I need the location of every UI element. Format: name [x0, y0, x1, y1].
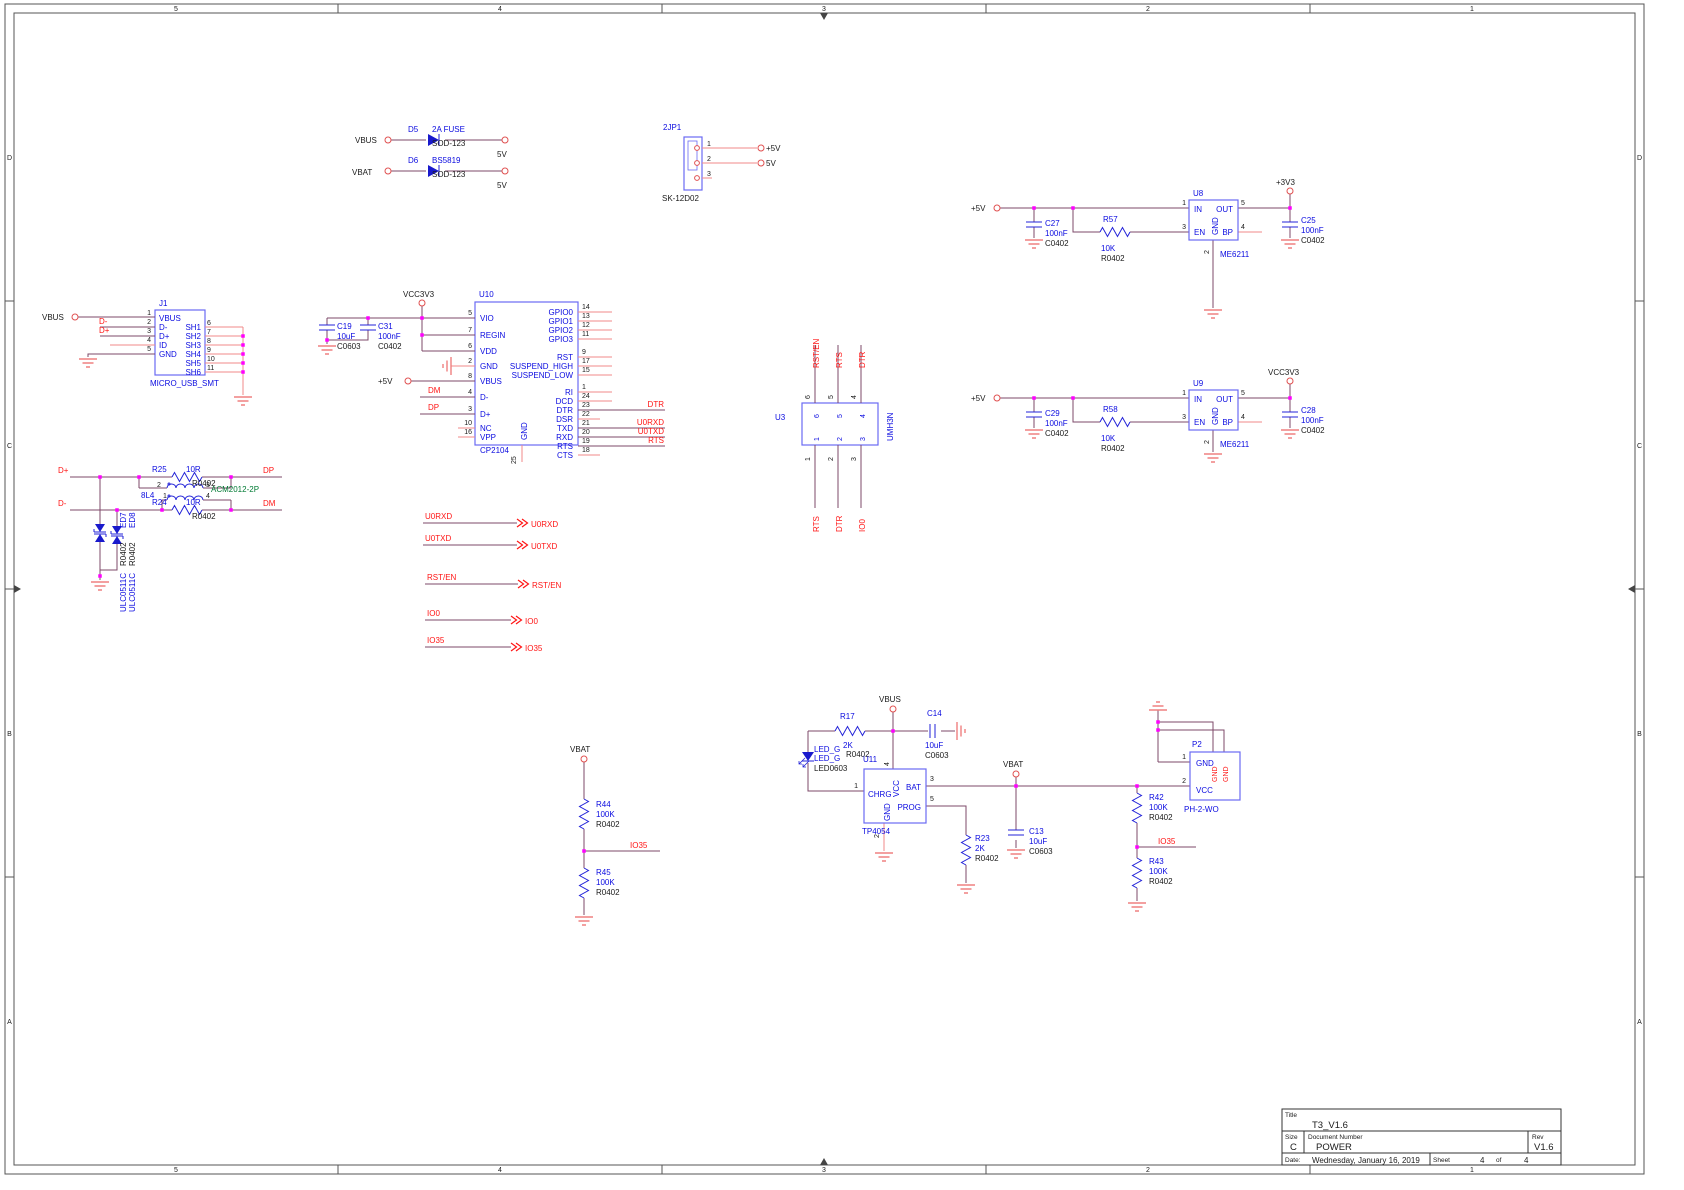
val-c27: 100nF — [1045, 229, 1068, 238]
val-r42: 100K — [1149, 803, 1168, 812]
pn-u11-vcc: VCC — [892, 780, 901, 797]
pin-u3-6i: 6 — [814, 414, 821, 418]
zone-row: C — [1637, 443, 1642, 450]
size-label: Size — [1285, 1134, 1298, 1141]
pn-u10-vio: VIO — [480, 314, 494, 323]
fp-d5: SOD-123 — [432, 139, 466, 148]
pin-u10-11: 11 — [582, 331, 589, 338]
ref-jp1: 2JP1 — [663, 123, 682, 132]
net-3v3: +3V3 — [1276, 178, 1295, 187]
zone-col: 5 — [174, 1167, 178, 1174]
pn-u10-gnd2: GND — [520, 422, 529, 440]
val-r43: 100K — [1149, 867, 1168, 876]
val-u8: ME6211 — [1220, 250, 1250, 259]
val-r57: 10K — [1101, 244, 1116, 253]
pin-u3-6o: 6 — [805, 395, 812, 399]
net-dm-u10: DM — [428, 386, 441, 395]
pin-u10-3: 3 — [468, 406, 472, 413]
zone-row: C — [7, 443, 12, 450]
pin-u10-14: 14 — [582, 304, 590, 311]
net-vcc3v3-u9: VCC3V3 — [1268, 368, 1300, 377]
net-p5v-u10: +5V — [378, 377, 393, 386]
fp-r44: R0402 — [596, 820, 620, 829]
pin-p2-2: 2 — [1182, 778, 1186, 785]
pin-u9-2: 2 — [1204, 440, 1211, 444]
ref-r25: R25 — [152, 465, 167, 474]
net-5v-jp1: 5V — [766, 159, 776, 168]
net-u0rxd-r: U0RXD — [531, 520, 558, 529]
pn-j1-sh1: SH1 — [185, 323, 201, 332]
val-p2: PH-2-WO — [1184, 805, 1219, 814]
component-u11-charger[interactable] — [799, 702, 1240, 911]
pn-u10-gpio2: GPIO2 — [549, 326, 574, 335]
sheet-label: Sheet — [1433, 1157, 1450, 1164]
pn-u9-bp: BP — [1222, 418, 1233, 427]
pn-u10-dsr: DSR — [556, 415, 573, 424]
pn-j1-vbus: VBUS — [159, 314, 181, 323]
net-io35-r: IO35 — [525, 644, 543, 653]
val-j1: MICRO_USB_SMT — [150, 379, 219, 388]
zone-col: 4 — [498, 1167, 502, 1174]
pn-u10-gpio3: GPIO3 — [549, 335, 574, 344]
pin-j1-5: 5 — [147, 346, 151, 353]
zone-col: 2 — [1146, 6, 1150, 13]
zone-col: 3 — [822, 6, 826, 13]
net-rts-u10: RTS — [648, 436, 664, 445]
ref-c29: C29 — [1045, 409, 1060, 418]
pn-u8-en: EN — [1194, 228, 1205, 237]
val-c29: 100nF — [1045, 419, 1068, 428]
net-dplus: D+ — [58, 466, 69, 475]
val-c25: 100nF — [1301, 226, 1324, 235]
pin-u10-7: 7 — [468, 327, 472, 334]
pn-u9-en: EN — [1194, 418, 1205, 427]
sheet-frame — [5, 4, 1644, 1174]
fp-c14: C0603 — [925, 751, 949, 760]
zone-row: A — [7, 1019, 12, 1026]
zone-row: B — [7, 731, 12, 738]
pin-u3-5o: 5 — [828, 395, 835, 399]
fp-r57: R0402 — [1101, 254, 1125, 263]
fp-r58: R0402 — [1101, 444, 1125, 453]
fp-jp1: SK-12D02 — [662, 194, 699, 203]
pin-j1-4: 4 — [147, 337, 151, 344]
pn-j1-dplus: D+ — [159, 332, 170, 341]
zone-col: 1 — [1470, 6, 1474, 13]
zone-row: A — [1637, 1019, 1642, 1026]
val-r25: 10R — [186, 465, 201, 474]
schematic-canvas: 5 4 3 2 1 5 4 3 2 1 D C B A D C B A — [0, 0, 1684, 1190]
val-c19: 10uF — [337, 332, 355, 341]
val-u11: TP4054 — [862, 827, 891, 836]
pin-l4-2: 2 — [157, 482, 161, 489]
pin-u10-10: 10 — [464, 420, 472, 427]
pn-j1-sh4: SH4 — [185, 350, 201, 359]
pin-u10-15: 15 — [582, 367, 590, 374]
pin-u3-1o: 1 — [805, 457, 812, 461]
pn-j1-sh5: SH5 — [185, 359, 201, 368]
sheet-date: Wednesday, January 16, 2019 — [1312, 1156, 1420, 1165]
fp-c28: C0402 — [1301, 426, 1325, 435]
schematic-sheet: 5 4 3 2 1 5 4 3 2 1 D C B A D C B A — [0, 0, 1684, 1190]
val-c13: 10uF — [1029, 837, 1047, 846]
title-block: Title T3_V1.6 Size C Document Number POW… — [1282, 1109, 1561, 1165]
net-rsten-u3: RST/EN — [812, 338, 821, 368]
net-vbat-d6: VBAT — [352, 168, 372, 177]
zone-col: 2 — [1146, 1167, 1150, 1174]
sheet-title: T3_V1.6 — [1312, 1120, 1348, 1131]
net-io35-chg: IO35 — [1158, 837, 1176, 846]
net-rsten-r: RST/EN — [532, 581, 562, 590]
pin-u10-22: 22 — [582, 411, 590, 418]
net-vbus-d5: VBUS — [355, 136, 377, 145]
net-u0rxd-l: U0RXD — [425, 512, 452, 521]
pin-u10-5: 5 — [468, 310, 472, 317]
pn-u10-ri: RI — [565, 388, 573, 397]
pin-l4-3: 3 — [206, 482, 210, 489]
val-u10: CP2104 — [480, 446, 509, 455]
pin-j1-11: 11 — [207, 365, 214, 372]
fp-r45: R0402 — [596, 888, 620, 897]
pn-u10-dtr: DTR — [557, 406, 574, 415]
val-r23: 2K — [975, 844, 985, 853]
pin-u10-21: 21 — [582, 420, 590, 427]
zone-labels: 5 4 3 2 1 5 4 3 2 1 D C B A D C B A — [7, 6, 1642, 1174]
ref-u11: U11 — [863, 755, 878, 764]
net-io0-r: IO0 — [525, 617, 538, 626]
pin-u3-5i: 5 — [837, 414, 844, 418]
pin-u8-1: 1 — [1182, 200, 1186, 207]
val-d6: BS5819 — [432, 156, 461, 165]
zone-col: 1 — [1470, 1167, 1474, 1174]
net-rts-u3t: RTS — [835, 352, 844, 368]
val-r44: 100K — [596, 810, 615, 819]
pin-j1-1: 1 — [147, 310, 151, 317]
rev-label: Rev — [1532, 1134, 1544, 1141]
pin-u10-6: 6 — [468, 343, 472, 350]
pn-u11-prog: PROG — [897, 803, 921, 812]
component-u8-regulator[interactable] — [994, 188, 1299, 318]
val-u3: UMH3N — [886, 412, 895, 441]
val-r17: 2K — [843, 741, 853, 750]
fp-d6: SOD-123 — [432, 170, 466, 179]
pin-u3-3i: 3 — [860, 437, 867, 441]
pn-u11-gnd: GND — [883, 803, 892, 821]
pn-u10-dplus: D+ — [480, 410, 491, 419]
net-dp-u10: DP — [428, 403, 439, 412]
pin-u10-2: 2 — [468, 358, 472, 365]
net-dtr-u3b: DTR — [835, 515, 844, 532]
net-vbat-div: VBAT — [570, 745, 590, 754]
pin-u10-20: 20 — [582, 429, 590, 436]
ref-c25: C25 — [1301, 216, 1316, 225]
net-u0rxd-u10: U0RXD — [637, 418, 664, 427]
ref-r17: R17 — [840, 712, 855, 721]
ref-r24: R24 — [152, 498, 167, 507]
pn-u10-susl: SUSPEND_LOW — [512, 371, 574, 380]
pin-u10-8: 8 — [468, 373, 472, 380]
val-c31: 100nF — [378, 332, 401, 341]
net-io0-u3b: IO0 — [858, 519, 867, 532]
ref-j1: J1 — [159, 299, 168, 308]
fp-c27: C0402 — [1045, 239, 1069, 248]
pin-u8-3: 3 — [1182, 224, 1186, 231]
pin-u3-2i: 2 — [837, 437, 844, 441]
net-p5v-u9: +5V — [971, 394, 986, 403]
net-dp: DP — [263, 466, 274, 475]
ref-r42: R42 — [1149, 793, 1164, 802]
document-number: POWER — [1316, 1142, 1352, 1153]
net-p5v-jp1: +5V — [766, 144, 781, 153]
ref-u3: U3 — [775, 413, 786, 422]
pn-u8-in: IN — [1194, 205, 1202, 214]
fp-r42: R0402 — [1149, 813, 1173, 822]
sheet-number: 4 — [1480, 1156, 1485, 1165]
net-io35-div: IO35 — [630, 841, 648, 850]
pn-j1-dminus: D- — [159, 323, 168, 332]
pn-u10-gpio1: GPIO1 — [549, 317, 574, 326]
pn-u10-regin: REGIN — [480, 331, 506, 340]
ref-r57: R57 — [1103, 215, 1118, 224]
net-gnd-p2a: GND — [1212, 766, 1219, 782]
pn-j1-sh6: SH6 — [185, 368, 201, 377]
pn-u10-gpio0: GPIO0 — [549, 308, 574, 317]
docnum-label: Document Number — [1308, 1134, 1363, 1141]
ref-r43: R43 — [1149, 857, 1164, 866]
pin-u9-5: 5 — [1241, 390, 1245, 397]
fp-r24: R0402 — [192, 512, 216, 521]
pin-u8-5: 5 — [1241, 200, 1245, 207]
fp-ed7: R0402 — [119, 542, 128, 566]
pn-j1-id: ID — [159, 341, 167, 350]
pin-u10-25: 25 — [511, 456, 518, 464]
pin-u11-4: 4 — [884, 762, 891, 766]
component-u3-umh3n[interactable] — [802, 345, 878, 508]
val-r58: 10K — [1101, 434, 1116, 443]
pin-u10-17: 17 — [582, 358, 590, 365]
pn-u10-rxd: RXD — [556, 433, 573, 442]
ref-ed8: ED8 — [128, 512, 137, 528]
sheet-rev: V1.6 — [1534, 1142, 1554, 1153]
val-led: LED_G — [814, 754, 840, 763]
pin-l4-4: 4 — [206, 493, 210, 500]
net-io0-l: IO0 — [427, 609, 440, 618]
net-u0txd-l: U0TXD — [425, 534, 451, 543]
net-vbus-j1: VBUS — [42, 313, 64, 322]
zone-row: D — [1637, 155, 1642, 162]
net-5v-d6: 5V — [497, 181, 507, 190]
val-d5: 2A FUSE — [432, 125, 465, 134]
pin-u3-1i: 1 — [814, 437, 821, 441]
pin-jp1-2: 2 — [707, 156, 711, 163]
pn-j1-sh3: SH3 — [185, 341, 201, 350]
pin-u11-5: 5 — [930, 796, 934, 803]
pin-u3-4i: 4 — [860, 414, 867, 418]
val-r45: 100K — [596, 878, 615, 887]
pin-j1-10: 10 — [207, 356, 215, 363]
net-rts-u3b: RTS — [812, 516, 821, 532]
net-vbat-chg: VBAT — [1003, 760, 1023, 769]
fp-c31: C0402 — [378, 342, 402, 351]
pn-u10-dcd: DCD — [556, 397, 574, 406]
pn-u9-in: IN — [1194, 395, 1202, 404]
title-label: Title — [1285, 1112, 1297, 1119]
ref-c13: C13 — [1029, 827, 1044, 836]
net-dm: DM — [263, 499, 276, 508]
zone-col: 5 — [174, 6, 178, 13]
pin-u10-18: 18 — [582, 447, 590, 454]
pn-u10-vdd: VDD — [480, 347, 497, 356]
pin-j1-6: 6 — [207, 320, 211, 327]
fp-c13: C0603 — [1029, 847, 1053, 856]
pin-u10-19: 19 — [582, 438, 590, 445]
zone-row: B — [1637, 731, 1642, 738]
pin-j1-3: 3 — [147, 328, 151, 335]
ref-r45: R45 — [596, 868, 611, 877]
val-r24: 10R — [186, 498, 201, 507]
pin-u10-9: 9 — [582, 349, 586, 356]
pin-jp1-1: 1 — [707, 141, 711, 148]
ref-u10: U10 — [479, 290, 494, 299]
ref-d6: D6 — [408, 156, 419, 165]
pin-j1-2: 2 — [147, 319, 151, 326]
fp-c19: C0603 — [337, 342, 361, 351]
pin-u10-24: 24 — [582, 393, 590, 400]
zone-col: 3 — [822, 1167, 826, 1174]
net-5v-d5: 5V — [497, 150, 507, 159]
ref-d5: D5 — [408, 125, 419, 134]
fp-c25: C0402 — [1301, 236, 1325, 245]
pin-u10-23: 23 — [582, 402, 590, 409]
net-vcc3v3-u10: VCC3V3 — [403, 290, 435, 299]
net-p5v-u8: +5V — [971, 204, 986, 213]
pn-u9-out: OUT — [1216, 395, 1233, 404]
ref-u8: U8 — [1193, 189, 1204, 198]
pn-u10-dminus: D- — [480, 393, 489, 402]
pn-u11-chrg: CHRG — [868, 790, 892, 799]
pin-j1-9: 9 — [207, 347, 211, 354]
net-dtr-u3t: DTR — [858, 351, 867, 368]
pin-u10-16: 16 — [464, 429, 472, 436]
pin-u3-3o: 3 — [851, 457, 858, 461]
pn-u10-rts: RTS — [557, 442, 573, 451]
pn-u8-out: OUT — [1216, 205, 1233, 214]
ref-p2: P2 — [1192, 740, 1202, 749]
ref-c14: C14 — [927, 709, 942, 718]
net-dplus-j1: D+ — [99, 326, 110, 335]
fp-r43: R0402 — [1149, 877, 1173, 886]
pn-u10-gnd: GND — [480, 362, 498, 371]
pin-u11-3: 3 — [930, 776, 934, 783]
pn-j1-sh2: SH2 — [185, 332, 201, 341]
net-dminus-j1: D- — [99, 317, 108, 326]
ref-r58: R58 — [1103, 405, 1118, 414]
pin-u8-4: 4 — [1241, 224, 1245, 231]
net-dtr-u10: DTR — [648, 400, 665, 409]
ref-r44: R44 — [596, 800, 611, 809]
pn-u8-gnd: GND — [1211, 217, 1220, 235]
ref-u9: U9 — [1193, 379, 1204, 388]
ref-ed7: ED7 — [119, 512, 128, 528]
ref-c19: C19 — [337, 322, 352, 331]
fp-ed8: R0402 — [128, 542, 137, 566]
val-ed8: ULC0511C — [128, 573, 137, 612]
pin-u9-1: 1 — [1182, 390, 1186, 397]
fp-r23: R0402 — [975, 854, 999, 863]
val-c28: 100nF — [1301, 416, 1324, 425]
pin-u10-13: 13 — [582, 313, 590, 320]
pin-u11-1: 1 — [854, 783, 858, 790]
val-c14: 10uF — [925, 741, 943, 750]
pin-u8-2: 2 — [1204, 250, 1211, 254]
pn-u10-rst: RST — [557, 353, 573, 362]
fp-led: LED0603 — [814, 764, 848, 773]
val-l4: ACM2012-2P — [211, 485, 259, 494]
pin-u10-1: 1 — [582, 384, 586, 391]
ref-c28: C28 — [1301, 406, 1316, 415]
sheet-total: 4 — [1524, 1156, 1529, 1165]
pn-j1-gnd: GND — [159, 350, 177, 359]
pin-jp1-3: 3 — [707, 171, 711, 178]
net-rsten-l: RST/EN — [427, 573, 457, 582]
ref-led: LED_G — [814, 745, 840, 754]
pin-j1-8: 8 — [207, 338, 211, 345]
pn-p2-vcc: VCC — [1196, 786, 1213, 795]
zone-row: D — [7, 155, 12, 162]
pn-u11-bat: BAT — [906, 783, 921, 792]
pin-u9-4: 4 — [1241, 414, 1245, 421]
component-u9-regulator[interactable] — [994, 378, 1299, 462]
date-label: Date: — [1285, 1157, 1301, 1164]
net-gnd-p2b: GND — [1223, 766, 1230, 782]
pn-u8-bp: BP — [1222, 228, 1233, 237]
pn-u10-txd: TXD — [557, 424, 573, 433]
zone-col: 4 — [498, 6, 502, 13]
pin-u3-2o: 2 — [828, 457, 835, 461]
val-ed7: ULC0511C — [119, 573, 128, 612]
pn-u10-vpp: VPP — [480, 433, 496, 442]
pin-j1-7: 7 — [207, 329, 211, 336]
pin-p2-1: 1 — [1182, 754, 1186, 761]
pn-u9-gnd: GND — [1211, 407, 1220, 425]
sheet-size: C — [1290, 1142, 1297, 1153]
net-vbus-chg: VBUS — [879, 695, 901, 704]
pin-u10-4: 4 — [468, 389, 472, 396]
net-u0txd-r: U0TXD — [531, 542, 557, 551]
net-u0txd-u10: U0TXD — [638, 427, 664, 436]
pn-u10-cts: CTS — [557, 451, 573, 460]
component-jp1[interactable] — [684, 137, 764, 190]
val-u9: ME6211 — [1220, 440, 1250, 449]
pn-u10-nc: NC — [480, 424, 492, 433]
pin-u10-12: 12 — [582, 322, 590, 329]
net-dminus: D- — [58, 499, 67, 508]
ref-c31: C31 — [378, 322, 393, 331]
ref-c27: C27 — [1045, 219, 1060, 228]
pn-u10-sush: SUSPEND_HIGH — [510, 362, 573, 371]
fp-c29: C0402 — [1045, 429, 1069, 438]
pin-u3-4o: 4 — [851, 395, 858, 399]
of-label: of — [1496, 1157, 1502, 1164]
pn-u10-vbus: VBUS — [480, 377, 502, 386]
pin-u9-3: 3 — [1182, 414, 1186, 421]
net-io35-l: IO35 — [427, 636, 445, 645]
ref-r23: R23 — [975, 834, 990, 843]
